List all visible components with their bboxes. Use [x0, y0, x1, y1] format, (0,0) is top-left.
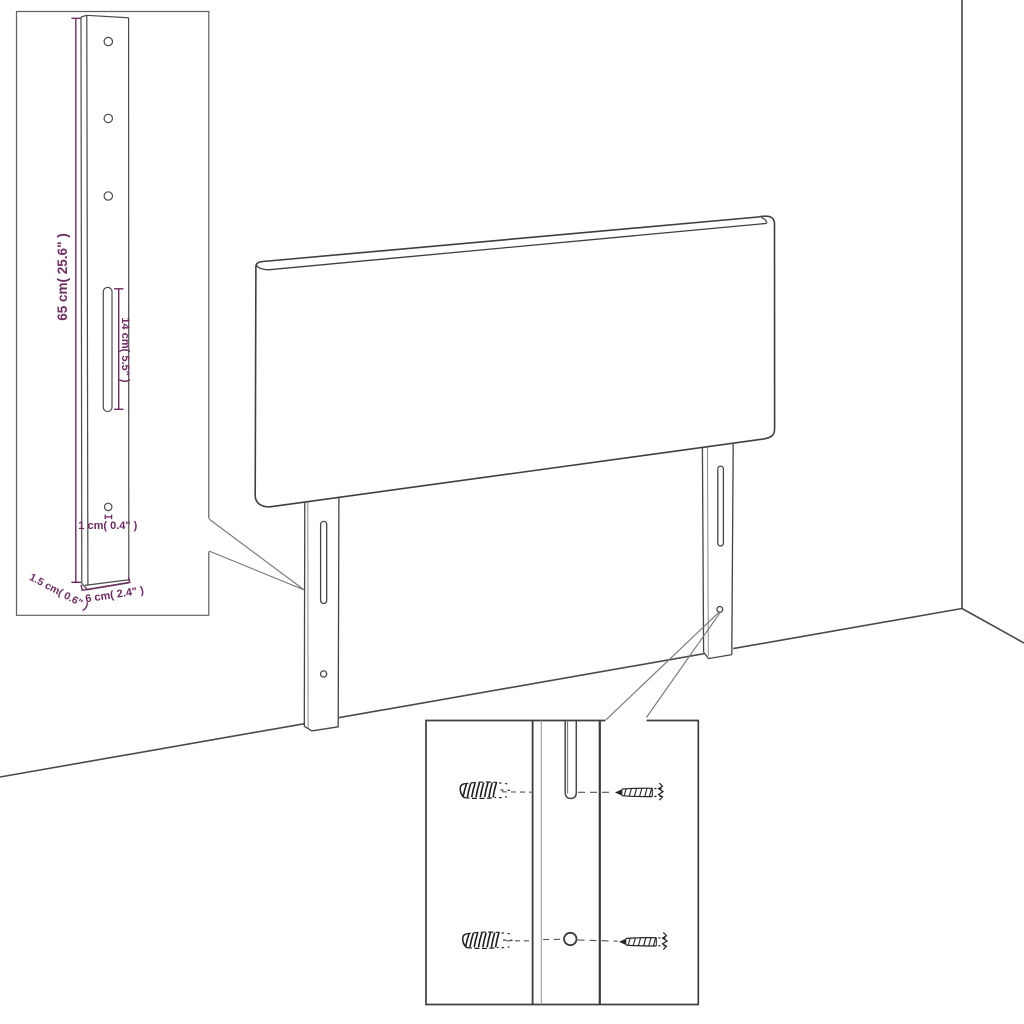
svg-text:65 cm( 25.6" ): 65 cm( 25.6" ) — [55, 233, 70, 320]
svg-text:14 cm( 5.5" ): 14 cm( 5.5" ) — [119, 317, 131, 382]
svg-text:1 cm( 0.4" ): 1 cm( 0.4" ) — [78, 520, 137, 532]
